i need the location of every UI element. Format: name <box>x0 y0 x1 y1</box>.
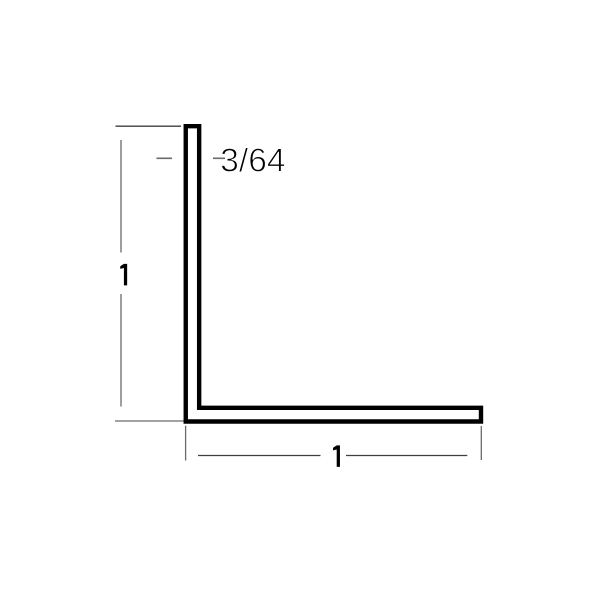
svg-text:3/64: 3/64 <box>220 142 285 179</box>
